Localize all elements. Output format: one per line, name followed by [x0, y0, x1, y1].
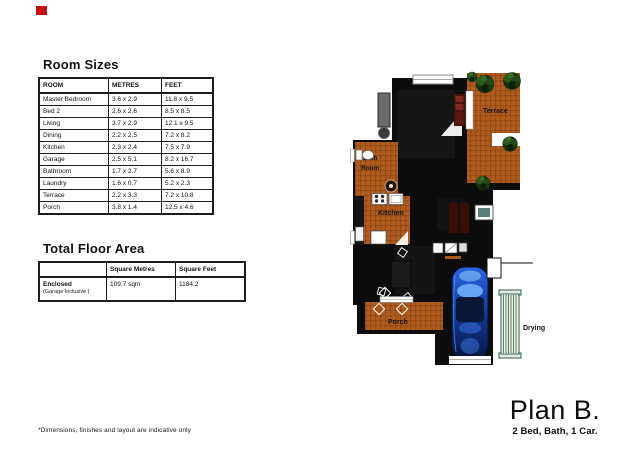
- room-feet: 7.2 x 8.2: [162, 130, 214, 142]
- window: [351, 149, 355, 162]
- kitchen-label: Kitchen: [378, 210, 404, 217]
- room-metres: 2.2 x 2.5: [109, 130, 162, 142]
- room-name: Dining: [39, 130, 109, 142]
- enclosed-label-cell: Enclosed (Garage Inclusive ): [39, 277, 107, 301]
- bush-icon: [502, 136, 517, 151]
- room-name: Kitchen: [39, 142, 109, 154]
- drying-rack: [499, 290, 521, 358]
- room-feet: 8.5 x 8.5: [162, 106, 214, 118]
- room-sizes-section: Room Sizes ROOM METRES FEET Master Bedro…: [38, 57, 214, 215]
- table-row: Master Bedroom3.6 x 2.911.8 x 9.5: [39, 93, 213, 106]
- terrace-door: [466, 91, 473, 129]
- column-header-feet: FEET: [162, 78, 214, 93]
- meter-box: [487, 258, 533, 278]
- room-metres: 3.6 x 2.9: [109, 93, 162, 106]
- room-name: Porch: [39, 202, 109, 215]
- bush-icon: [467, 72, 477, 82]
- square-feet-value: 1184.2: [176, 277, 246, 301]
- drying-label: Drying: [523, 325, 545, 332]
- plan-title-block: Plan B. 2 Bed, Bath, 1 Car.: [503, 396, 607, 437]
- room-name: Garage: [39, 154, 109, 166]
- water-heater: [378, 93, 390, 139]
- enclosed-label: Enclosed: [43, 281, 103, 288]
- room-metres: 1.7 x 2.7: [109, 166, 162, 178]
- square-metres-value: 109.7 sqm: [107, 277, 176, 301]
- room-sizes-title: Room Sizes: [43, 57, 214, 72]
- room-feet: 12.5 x 4.6: [162, 202, 214, 215]
- room-feet: 8.2 x 16.7: [162, 154, 214, 166]
- sink-icon: [389, 194, 403, 205]
- column-header-square-metres: Square Metres: [107, 262, 176, 277]
- toilet-icon: [356, 150, 374, 160]
- plan-subtitle: 2 Bed, Bath, 1 Car.: [503, 426, 607, 437]
- window: [351, 231, 355, 244]
- terrace-tiles: [467, 73, 520, 185]
- bush-icon: [503, 72, 521, 90]
- bush-icon: [476, 75, 494, 93]
- room-feet: 5.2 x 2.3: [162, 178, 214, 190]
- column-header-metres: METRES: [109, 78, 162, 93]
- table-row: Living3.7 x 2.912.1 x 9.5: [39, 118, 213, 130]
- table-header-row: ROOM METRES FEET: [39, 78, 213, 93]
- red-corner-mark: [36, 6, 47, 15]
- room-feet: 12.1 x 9.5: [162, 118, 214, 130]
- table-row: Bed 22.6 x 2.68.5 x 8.5: [39, 106, 213, 118]
- window: [413, 75, 453, 84]
- room-metres: 3.7 x 2.9: [109, 118, 162, 130]
- room-name: Bathroom: [39, 166, 109, 178]
- plan-title: Plan B.: [503, 396, 607, 424]
- room-name: Bed 2: [39, 106, 109, 118]
- table-row: Garage2.5 x 5.18.2 x 16.7: [39, 154, 213, 166]
- room-metres: 2.5 x 5.1: [109, 154, 162, 166]
- room-feet: 5.6 x 8.9: [162, 166, 214, 178]
- bed: [454, 94, 465, 126]
- room-name: Master Bedroom: [39, 93, 109, 106]
- total-floor-area-section: Total Floor Area Square Metres Square Fe…: [38, 241, 246, 302]
- car: [452, 267, 488, 359]
- room-metres: 1.6 x 0.7: [109, 178, 162, 190]
- fridge-icon: [371, 231, 386, 244]
- appliance: [356, 227, 364, 241]
- porch-step: [380, 297, 413, 303]
- room-feet: 7.5 x 7.9: [162, 142, 214, 154]
- room-feet: 11.8 x 9.5: [162, 93, 214, 106]
- room-feet: 7.2 x 10.8: [162, 190, 214, 202]
- footnote: *Dimensions, finishes and layout are ind…: [38, 427, 191, 434]
- room-metres: 2.2 x 3.3: [109, 190, 162, 202]
- bathroom-label-line2: Room: [361, 165, 380, 172]
- basin-icon: [385, 180, 397, 192]
- table-row: Kitchen2.3 x 2.47.5 x 7.9: [39, 142, 213, 154]
- stove-icon: [372, 194, 387, 205]
- room-name: Laundry: [39, 178, 109, 190]
- room-metres: 2.3 x 2.4: [109, 142, 162, 154]
- table-row: Terrace2.2 x 3.37.2 x 10.8: [39, 190, 213, 202]
- column-header-blank: [39, 262, 107, 277]
- column-header-room: ROOM: [39, 78, 109, 93]
- table-row: Laundry1.6 x 0.75.2 x 2.3: [39, 178, 213, 190]
- enclosed-sublabel: (Garage Inclusive ): [43, 289, 103, 296]
- terrace-label: Terrace: [483, 108, 508, 115]
- total-floor-area-title: Total Floor Area: [43, 241, 246, 256]
- table-header-row: Square Metres Square Feet: [39, 262, 245, 277]
- garage-door-opening: [449, 356, 491, 364]
- room-sizes-table: ROOM METRES FEET Master Bedroom3.6 x 2.9…: [38, 77, 214, 215]
- room-name: Living: [39, 118, 109, 130]
- total-floor-area-table: Square Metres Square Feet Enclosed (Gara…: [38, 261, 246, 302]
- wardrobe: [460, 203, 469, 233]
- wardrobe: [449, 203, 458, 233]
- window: [475, 205, 493, 220]
- table-row: Enclosed (Garage Inclusive ) 109.7 sqm 1…: [39, 277, 245, 301]
- table-row: Bathroom1.7 x 2.75.6 x 8.9: [39, 166, 213, 178]
- room-name: Terrace: [39, 190, 109, 202]
- floor-plan: Terrace Bath Room: [340, 55, 550, 375]
- room-metres: 2.6 x 2.6: [109, 106, 162, 118]
- terrace-wall: [467, 183, 520, 190]
- column-header-square-feet: Square Feet: [176, 262, 246, 277]
- room-metres: 3.8 x 1.4: [109, 202, 162, 215]
- table-row: Porch3.8 x 1.412.5 x 4.6: [39, 202, 213, 215]
- porch-label: Porch: [388, 319, 408, 326]
- bush-icon: [476, 176, 490, 190]
- table-row: Dining2.2 x 2.57.2 x 8.2: [39, 130, 213, 142]
